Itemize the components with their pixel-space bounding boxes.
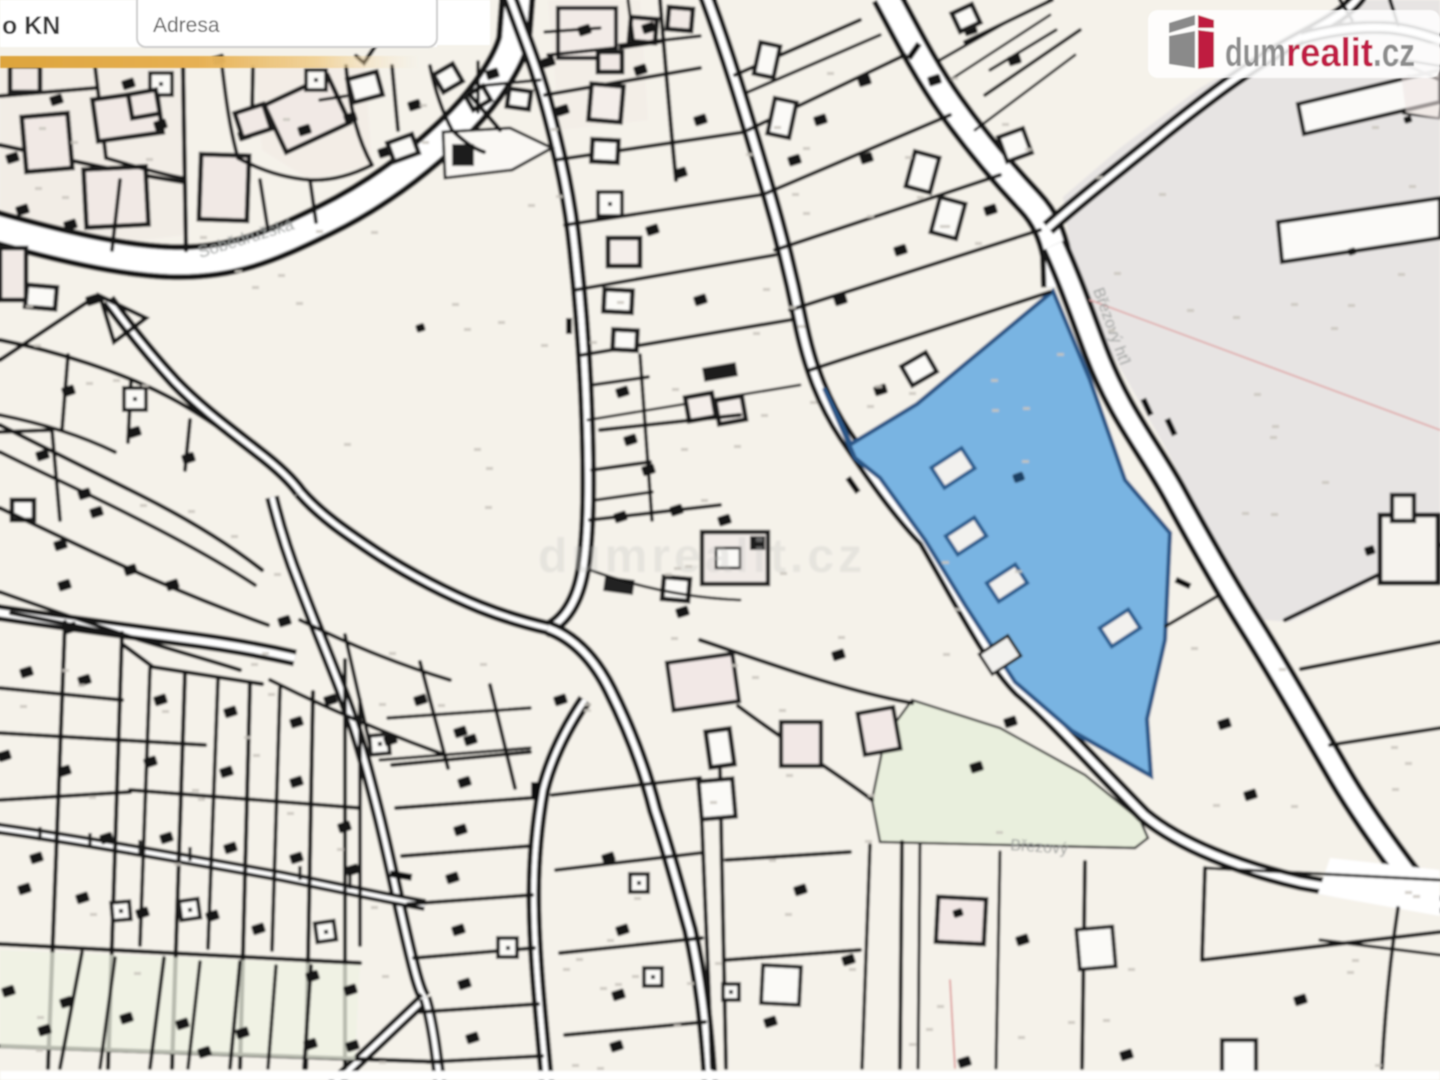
svg-text:o KN: o KN	[2, 12, 60, 40]
svg-text:Adresa: Adresa	[153, 14, 220, 37]
svg-text:dumrealit.cz: dumrealit.cz	[538, 530, 866, 583]
svg-text:dumrealit.cz: dumrealit.cz	[1225, 31, 1415, 75]
